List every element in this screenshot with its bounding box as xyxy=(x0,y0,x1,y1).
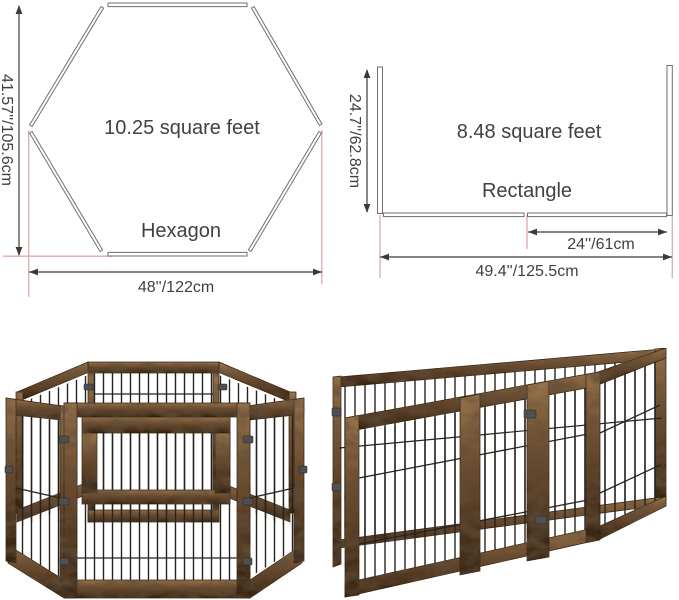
rectangle-shape-label: Rectangle xyxy=(482,180,572,202)
rectangle-inner-width-label: 24''/61cm xyxy=(567,236,634,253)
rectangle-diagram: 8.48 square feet Rectangle 24.7''/62.8cm… xyxy=(346,66,672,281)
pen-front-left-post xyxy=(345,415,359,597)
pen-door-post xyxy=(527,381,549,561)
product-infographic: 10.25 square feet Hexagon 41.57''/105.6c… xyxy=(0,0,679,600)
pen-front-mid-post xyxy=(460,394,480,575)
hexagon-area-label: 10.25 square feet xyxy=(104,117,260,139)
rectangle-height-label: 24.7''/62.8cm xyxy=(346,94,363,188)
rectangle-width-label: 49.4''/125.5cm xyxy=(475,263,578,280)
hexagon-width-label: 48''/122cm xyxy=(138,279,214,296)
hexagon-diagram: 10.25 square feet Hexagon 41.57''/105.6c… xyxy=(0,3,322,297)
rectangle-area-label: 8.48 square feet xyxy=(457,121,602,143)
pen-door-right-post xyxy=(215,433,230,493)
hexagon-pen-photo xyxy=(0,348,312,600)
hexagon-labels: 10.25 square feet Hexagon 41.57''/105.6c… xyxy=(0,74,260,296)
hexagon-height-label: 41.57''/105.6cm xyxy=(0,74,15,186)
pen-door-bottom-rail xyxy=(82,490,230,504)
pen-door-left-post xyxy=(82,433,97,493)
rectangle-pen-right-wires xyxy=(600,358,660,527)
rectangle-dimension-lines xyxy=(367,70,672,257)
rectangle-pen-photo xyxy=(330,348,675,600)
hexagon-shape-label: Hexagon xyxy=(141,220,221,242)
rectangle-labels: 8.48 square feet Rectangle 24.7''/62.8cm… xyxy=(346,94,635,280)
pen-front-right-post xyxy=(586,372,600,543)
pen-door-top-rail xyxy=(82,417,230,433)
dimension-diagrams: 10.25 square feet Hexagon 41.57''/105.6c… xyxy=(0,0,679,346)
